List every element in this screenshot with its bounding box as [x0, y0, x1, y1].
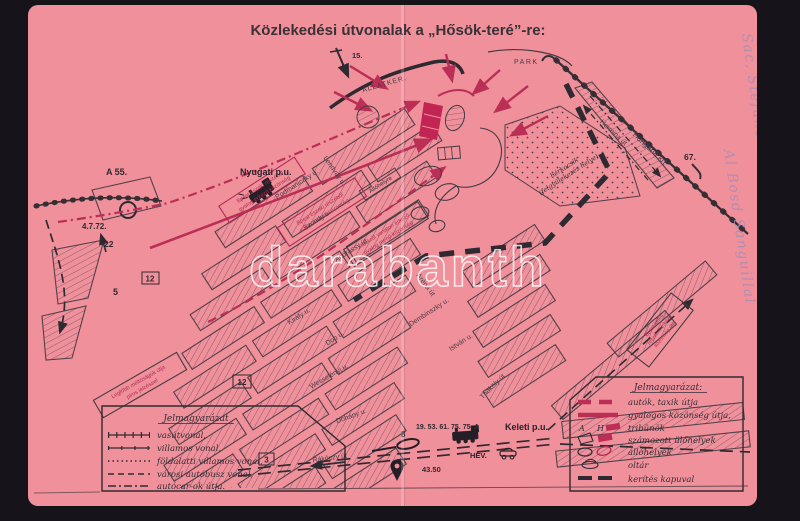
- legend-item: tribünök: [628, 424, 665, 434]
- legend-item: földalatti villamos vonal,: [156, 457, 263, 467]
- park-label: PARK: [514, 59, 539, 66]
- postcard-map-image: Közlekedési útvonalak a „Hősök-teré”-re:: [0, 0, 800, 521]
- legend-item: kerítés kapuval: [628, 474, 694, 485]
- num-67: 67.: [684, 152, 696, 162]
- num-4772: 4.7.72.: [82, 222, 106, 231]
- num-12a: 12: [146, 275, 155, 284]
- hev-label: HÉV.: [470, 451, 487, 460]
- legend-item: autócar-ok útja.: [157, 481, 225, 492]
- num-22: 22: [104, 239, 114, 249]
- nyugati-label: Nyugati p.u.: [240, 167, 292, 177]
- legend-item: városi autóbusz vonal,: [157, 469, 254, 480]
- legend-item: vasútvonal,: [157, 430, 206, 441]
- legend-left-title: Jelmagyarázat: [161, 413, 229, 424]
- legend-item: autók, taxik útja: [628, 397, 698, 408]
- tribune-letter-a: A: [578, 424, 585, 433]
- num-12b: 12: [238, 378, 247, 387]
- num-3: 3: [264, 456, 269, 465]
- keleti-label: Keleti p.u.: [505, 422, 548, 432]
- num-4350: 43.50: [422, 465, 441, 474]
- legend-item: oltár: [628, 460, 649, 471]
- legend-item: számozott ülőhelyek: [628, 435, 716, 446]
- num-5: 5: [113, 287, 118, 297]
- legend-item: állóhelyek: [628, 447, 672, 458]
- legend-right-title: Jelmagyarázat:: [632, 382, 702, 393]
- num-a55: A 55.: [106, 167, 127, 177]
- num-15: 15.: [352, 51, 362, 60]
- legend-item: villamos vonal,: [157, 444, 221, 454]
- watermark: darabanth: [249, 235, 547, 298]
- legend-item: gyalogos közönség útja,: [628, 410, 731, 421]
- tribune-letter-h: H: [596, 424, 605, 433]
- page-title: Közlekedési útvonalak a „Hősök-teré”-re:: [250, 22, 545, 39]
- num-keleti-lines: 19. 53. 61. 75. 75. A: [416, 424, 479, 431]
